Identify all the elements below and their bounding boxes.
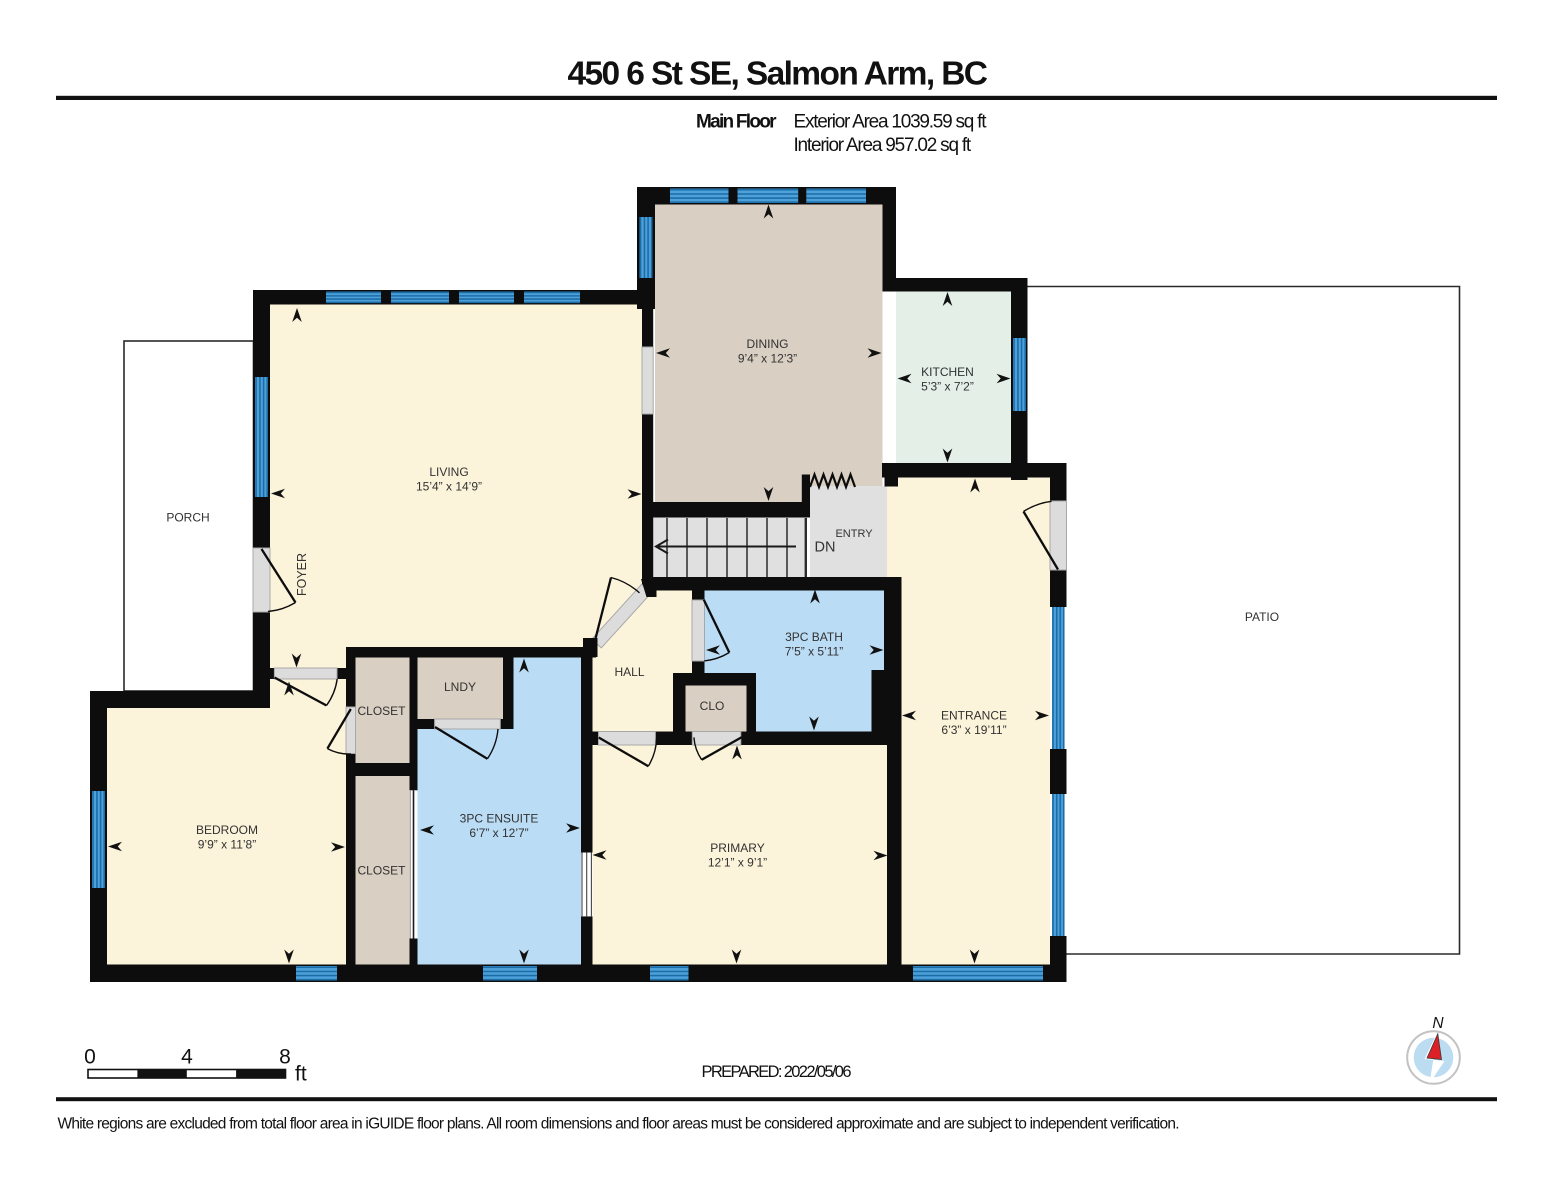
svg-text:White regions are excluded fro: White regions are excluded from total fl…: [58, 1116, 1180, 1133]
svg-text:HALL: HALL: [614, 665, 644, 679]
svg-text:PORCH: PORCH: [166, 511, 209, 525]
svg-text:CLOSET: CLOSET: [357, 864, 406, 878]
svg-text:450 6 St SE, Salmon Arm, BC: 450 6 St SE, Salmon Arm, BC: [568, 56, 989, 93]
svg-text:DN: DN: [815, 539, 836, 555]
svg-text:9’4” x 12’3”: 9’4” x 12’3”: [738, 352, 797, 366]
svg-text:Interior Area 957.02 sq ft: Interior Area 957.02 sq ft: [794, 135, 972, 156]
svg-text:7’5” x 5’11”: 7’5” x 5’11”: [785, 645, 843, 659]
svg-text:5’3” x 7’2”: 5’3” x 7’2”: [921, 380, 974, 394]
svg-text:CLO: CLO: [700, 699, 725, 713]
svg-text:3PC BATH: 3PC BATH: [785, 630, 843, 644]
svg-text:6’7” x 12’7”: 6’7” x 12’7”: [469, 826, 528, 840]
svg-text:PATIO: PATIO: [1245, 610, 1279, 624]
svg-text:BEDROOM: BEDROOM: [196, 823, 258, 837]
svg-text:3PC ENSUITE: 3PC ENSUITE: [460, 812, 539, 826]
svg-text:6’3” x 19’11”: 6’3” x 19’11”: [941, 723, 1006, 737]
svg-text:ft: ft: [295, 1063, 307, 1086]
svg-text:12’1” x 9’1”: 12’1” x 9’1”: [708, 856, 767, 870]
svg-text:LIVING: LIVING: [429, 465, 468, 479]
svg-text:4: 4: [181, 1046, 193, 1069]
svg-text:ENTRANCE: ENTRANCE: [941, 709, 1007, 723]
svg-text:N: N: [1432, 1015, 1444, 1032]
svg-text:Exterior Area 1039.59 sq ft: Exterior Area 1039.59 sq ft: [794, 112, 988, 133]
svg-text:8: 8: [279, 1046, 291, 1069]
svg-text:LNDY: LNDY: [444, 680, 476, 694]
svg-text:ENTRY: ENTRY: [835, 528, 873, 540]
svg-text:15’4” x 14’9”: 15’4” x 14’9”: [416, 480, 482, 494]
svg-text:CLOSET: CLOSET: [357, 704, 406, 718]
svg-text:PRIMARY: PRIMARY: [710, 841, 764, 855]
svg-text:0: 0: [84, 1046, 96, 1069]
svg-text:PREPARED: 2022/05/06: PREPARED: 2022/05/06: [702, 1063, 852, 1081]
svg-text:FOYER: FOYER: [295, 553, 309, 596]
svg-text:KITCHEN: KITCHEN: [921, 365, 974, 379]
svg-text:9’9” x 11’8”: 9’9” x 11’8”: [198, 838, 256, 852]
svg-text:DINING: DINING: [747, 337, 789, 351]
svg-text:Main Floor: Main Floor: [696, 112, 777, 133]
